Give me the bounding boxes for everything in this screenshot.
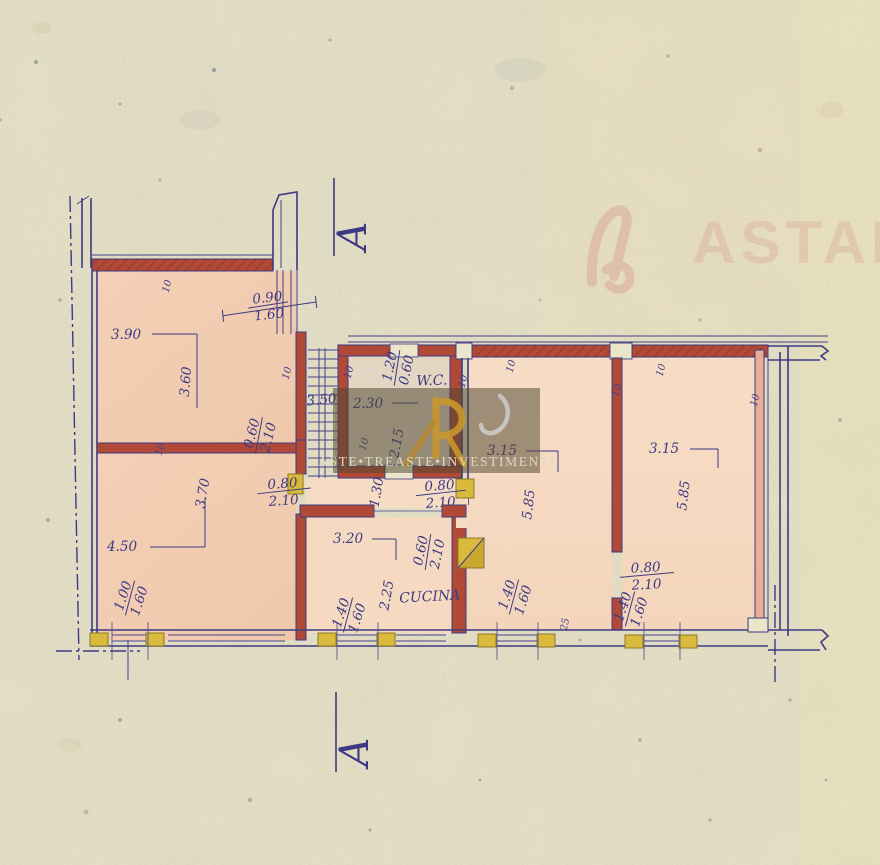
wc-label: W.C.	[416, 372, 448, 389]
top-wall-right	[456, 343, 768, 359]
dim-room2-width: 4.50	[106, 539, 137, 555]
dim-stairs: 3.50	[306, 390, 338, 409]
kitchen-flue	[458, 538, 484, 568]
scanned-floor-plan-page: 3.50 W.C. 2.30 2.15 1.20 0.60	[0, 0, 880, 865]
watermark-corner-text: ASTAL	[692, 209, 880, 276]
dim-kitchen-width: 3.20	[333, 531, 363, 547]
svg-text:1.60: 1.60	[253, 305, 285, 324]
watermark-center-text: ASTE•TREASTE•INVESTIMENTI	[318, 454, 556, 469]
wall-pillar	[456, 479, 474, 498]
section-letter-top: A	[330, 222, 376, 255]
floor-plan-svg: 3.50 W.C. 2.30 2.15 1.20 0.60	[0, 0, 880, 865]
dim-right-width: 3.15	[649, 441, 679, 457]
dim-room1-height: 3.60	[177, 366, 196, 398]
kitchen-label: CUCINA	[399, 587, 461, 606]
svg-text:2.10: 2.10	[267, 492, 300, 510]
section-letter-bottom: A	[332, 738, 378, 771]
dim-room1-width: 3.90	[111, 327, 141, 343]
svg-text:2.10: 2.10	[630, 576, 662, 594]
watermark-center: ASTE•TREASTE•INVESTIMENTI	[318, 388, 556, 473]
